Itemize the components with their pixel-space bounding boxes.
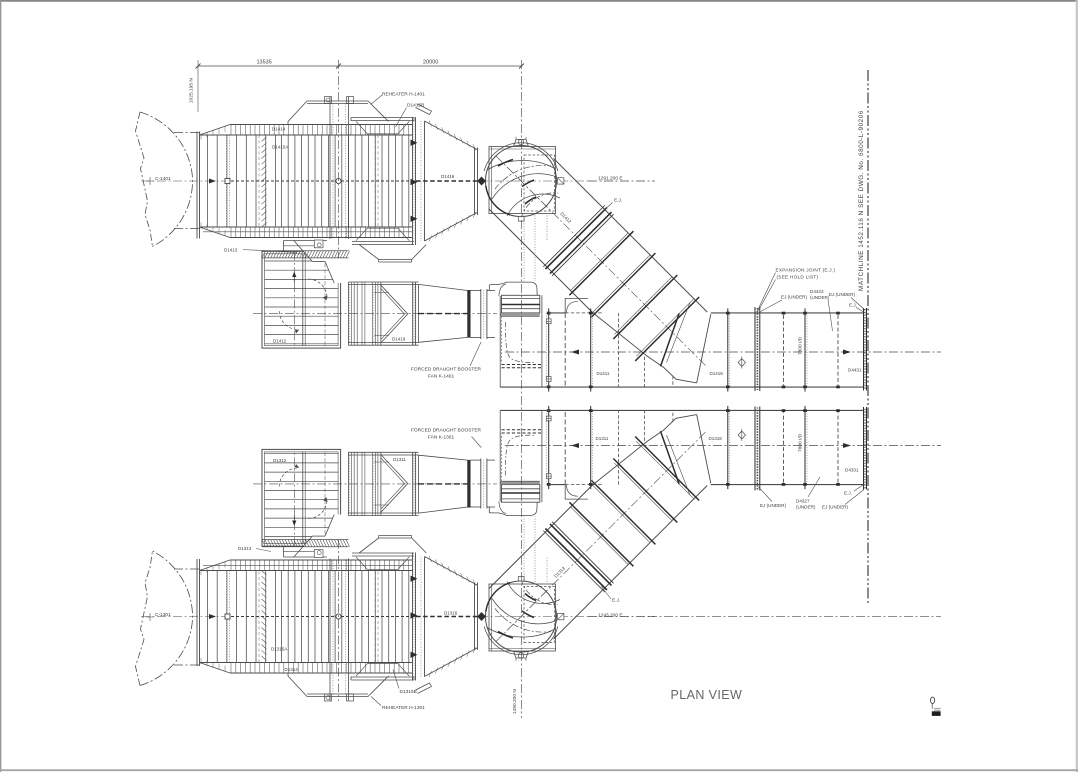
svg-text:EJ (UNDER): EJ (UNDER): [822, 505, 849, 510]
svg-text:(UNDER): (UNDER): [796, 505, 816, 510]
svg-text:1025.195 N: 1025.195 N: [189, 78, 195, 103]
svg-text:D1315B: D1315B: [400, 689, 417, 695]
svg-text:D1313: D1313: [238, 546, 252, 551]
svg-text:FORCED DRAUGHT BOOSTER: FORCED DRAUGHT BOOSTER: [411, 367, 482, 373]
svg-text:FAN K-1401: FAN K-1401: [428, 374, 454, 380]
svg-text:D1414: D1414: [272, 127, 286, 132]
svg-text:MATCHLINE 1452.116 N SEE DWG.: MATCHLINE 1452.116 N SEE DWG. No. 6800-L…: [858, 110, 865, 291]
svg-text:D4327: D4327: [796, 499, 810, 504]
svg-text:(SEE HOLD LIST): (SEE HOLD LIST): [777, 275, 819, 280]
svg-text:7800 I/D: 7800 I/D: [798, 336, 804, 355]
svg-text:D1312: D1312: [273, 458, 287, 463]
svg-text:D1415B: D1415B: [407, 103, 424, 109]
svg-text:D1311: D1311: [596, 436, 609, 441]
svg-text:D1316: D1316: [444, 611, 458, 616]
svg-text:E.J.: E.J.: [612, 598, 620, 604]
svg-text:D1411: D1411: [597, 371, 610, 376]
svg-text:D1311: D1311: [393, 457, 406, 462]
svg-text:C-1401: C-1401: [155, 176, 171, 182]
svg-text:E.J.: E.J.: [844, 491, 852, 496]
svg-text:D1419: D1419: [392, 337, 406, 342]
svg-text:E.J.: E.J.: [614, 198, 622, 204]
svg-text:EJ (UNDER): EJ (UNDER): [829, 292, 856, 297]
svg-text:D1412: D1412: [273, 339, 287, 344]
svg-text:EJ (UNDER): EJ (UNDER): [760, 503, 787, 508]
svg-text:FAN K-1301: FAN K-1301: [428, 435, 454, 441]
svg-text:D1413: D1413: [224, 248, 238, 253]
svg-text:13535: 13535: [257, 60, 272, 66]
svg-text:E.J.: E.J.: [849, 303, 857, 308]
svg-text:1291.200 E: 1291.200 E: [598, 176, 623, 182]
svg-text:C-1301: C-1301: [155, 612, 171, 618]
svg-text:D1314: D1314: [285, 667, 299, 672]
svg-text:1490.200 N: 1490.200 N: [512, 689, 518, 714]
svg-text:(UNDER): (UNDER): [810, 295, 830, 300]
svg-text:EXPANSION JOINT (E.J.): EXPANSION JOINT (E.J.): [776, 268, 836, 273]
svg-text:PLAN VIEW: PLAN VIEW: [671, 688, 743, 702]
svg-text:20000: 20000: [423, 60, 438, 66]
svg-text:1243.200 E: 1243.200 E: [598, 613, 623, 619]
svg-text:REHEATER H-1401: REHEATER H-1401: [382, 92, 425, 98]
svg-text:D1415A: D1415A: [272, 145, 288, 150]
svg-text:D1315A: D1315A: [271, 647, 287, 652]
svg-text:D4423: D4423: [810, 289, 824, 294]
svg-text:FORCED DRAUGHT BOOSTER: FORCED DRAUGHT BOOSTER: [411, 428, 482, 434]
svg-text:7800 I/D: 7800 I/D: [798, 433, 804, 452]
svg-text:D1418: D1418: [710, 371, 724, 376]
svg-text:REHEATER H-1301: REHEATER H-1301: [382, 705, 425, 711]
svg-text:EJ (UNDER): EJ (UNDER): [781, 295, 808, 300]
svg-text:D1318: D1318: [709, 436, 723, 441]
svg-text:D4331: D4331: [845, 468, 859, 473]
svg-text:D4431: D4431: [848, 368, 862, 373]
svg-text:D1416: D1416: [441, 174, 455, 179]
